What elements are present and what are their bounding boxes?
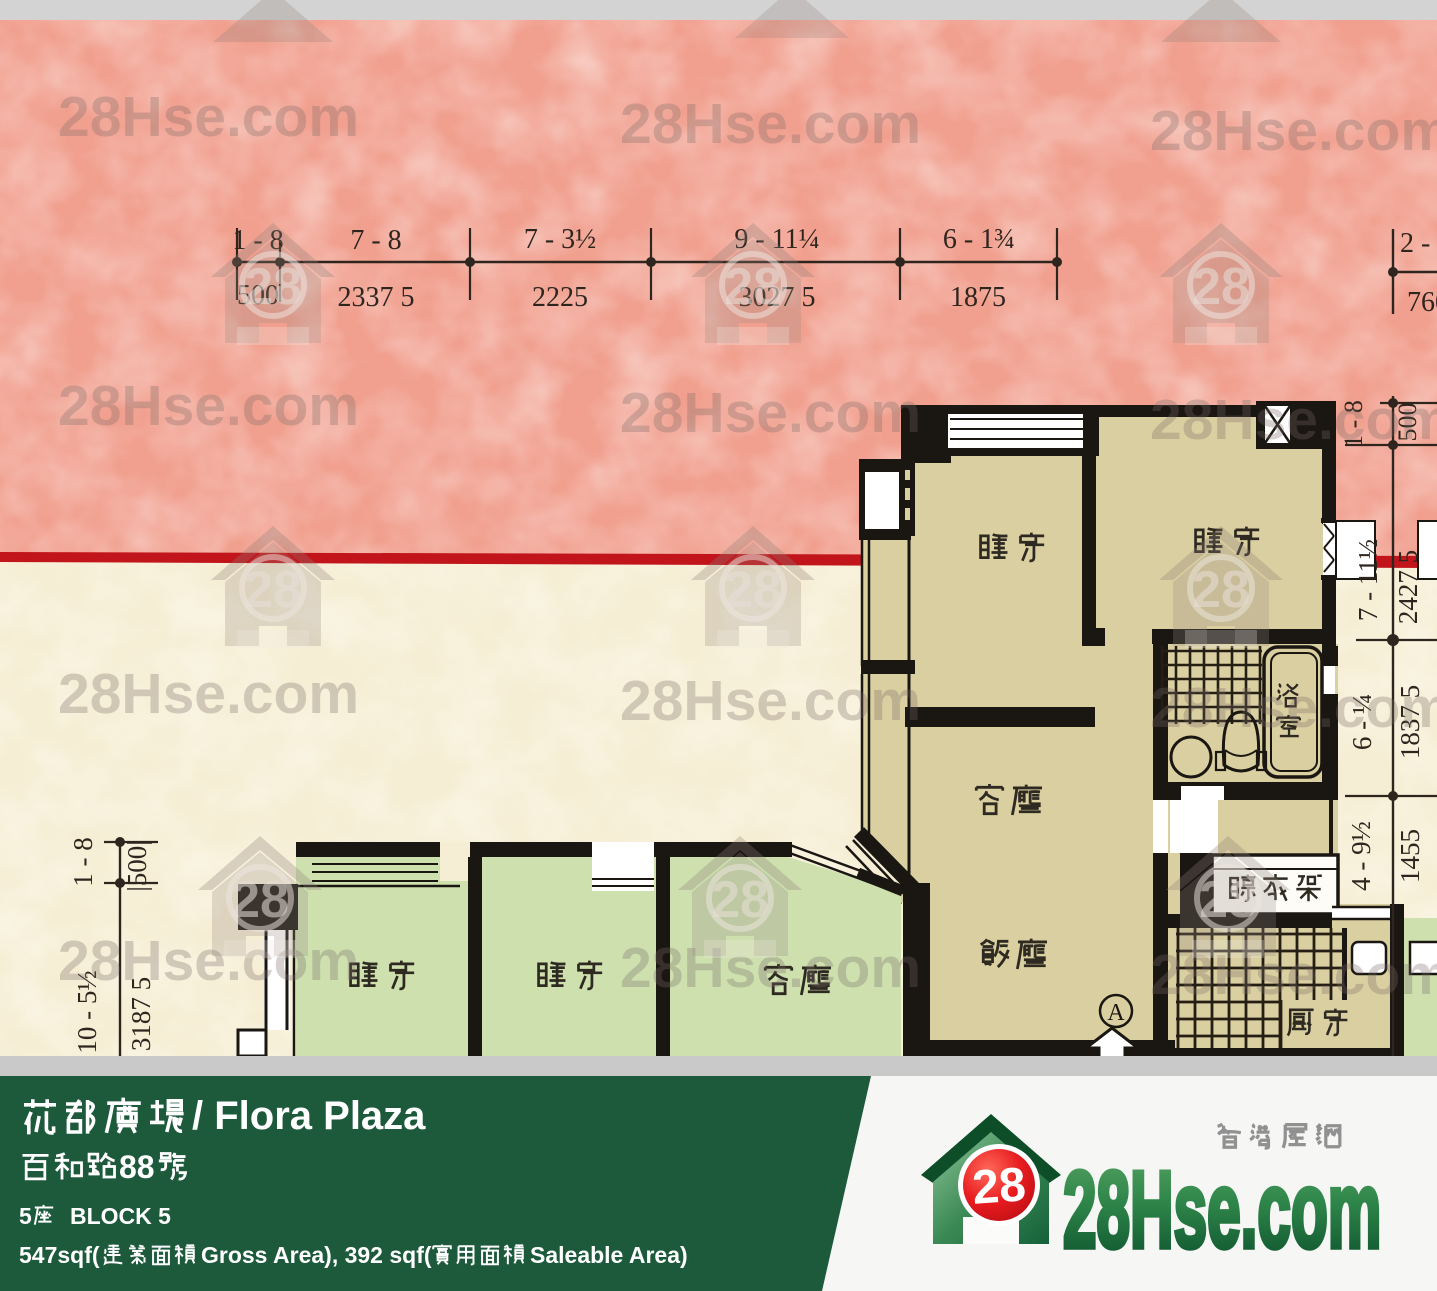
svg-text:28Hse.com: 28Hse.com bbox=[620, 381, 921, 445]
svg-text:2427 5: 2427 5 bbox=[1393, 550, 1423, 624]
svg-text:28Hse.com: 28Hse.com bbox=[58, 662, 359, 726]
svg-text:7 - 3½: 7 - 3½ bbox=[524, 224, 596, 255]
svg-text:760: 760 bbox=[1407, 287, 1437, 318]
svg-text:28Hse.com: 28Hse.com bbox=[58, 374, 359, 438]
svg-text:28Hse.com: 28Hse.com bbox=[620, 669, 921, 733]
svg-text:28Hse.com: 28Hse.com bbox=[58, 929, 359, 993]
svg-text:A: A bbox=[1107, 1000, 1125, 1026]
svg-text:1875: 1875 bbox=[950, 282, 1006, 313]
svg-text:28Hse.com: 28Hse.com bbox=[1063, 1148, 1381, 1270]
svg-text:28Hse.com: 28Hse.com bbox=[1150, 99, 1437, 163]
svg-text:28Hse.com: 28Hse.com bbox=[58, 85, 359, 149]
svg-text:|500|: |500| bbox=[122, 840, 152, 891]
svg-text:1455: 1455 bbox=[1395, 829, 1425, 883]
svg-text:6 - 1¾: 6 - 1¾ bbox=[943, 224, 1015, 255]
svg-text:1 - 8: 1 - 8 bbox=[68, 837, 98, 887]
svg-text:/ Flora Plaza: / Flora Plaza bbox=[192, 1094, 426, 1138]
svg-text:28Hse.com: 28Hse.com bbox=[1150, 388, 1437, 452]
svg-text:5: 5 bbox=[19, 1203, 32, 1229]
svg-text:28Hse.com: 28Hse.com bbox=[1150, 676, 1437, 740]
svg-text:88: 88 bbox=[119, 1149, 155, 1185]
svg-text:28: 28 bbox=[971, 1158, 1028, 1215]
svg-text:28Hse.com: 28Hse.com bbox=[620, 92, 921, 156]
svg-text:7 - 8: 7 - 8 bbox=[350, 225, 401, 256]
svg-text:4 - 9½: 4 - 9½ bbox=[1346, 821, 1376, 891]
svg-text:BLOCK 5: BLOCK 5 bbox=[70, 1203, 171, 1229]
svg-text:2225: 2225 bbox=[532, 282, 588, 313]
svg-text:547sqf(: 547sqf( bbox=[19, 1242, 100, 1268]
svg-text:2337 5: 2337 5 bbox=[338, 282, 415, 313]
svg-text:Saleable Area): Saleable Area) bbox=[530, 1242, 688, 1268]
svg-text:2 - 6: 2 - 6 bbox=[1400, 228, 1437, 259]
svg-text:7 - 11½: 7 - 11½ bbox=[1353, 539, 1383, 621]
svg-text:Gross Area), 392 sqf(: Gross Area), 392 sqf( bbox=[201, 1242, 432, 1268]
